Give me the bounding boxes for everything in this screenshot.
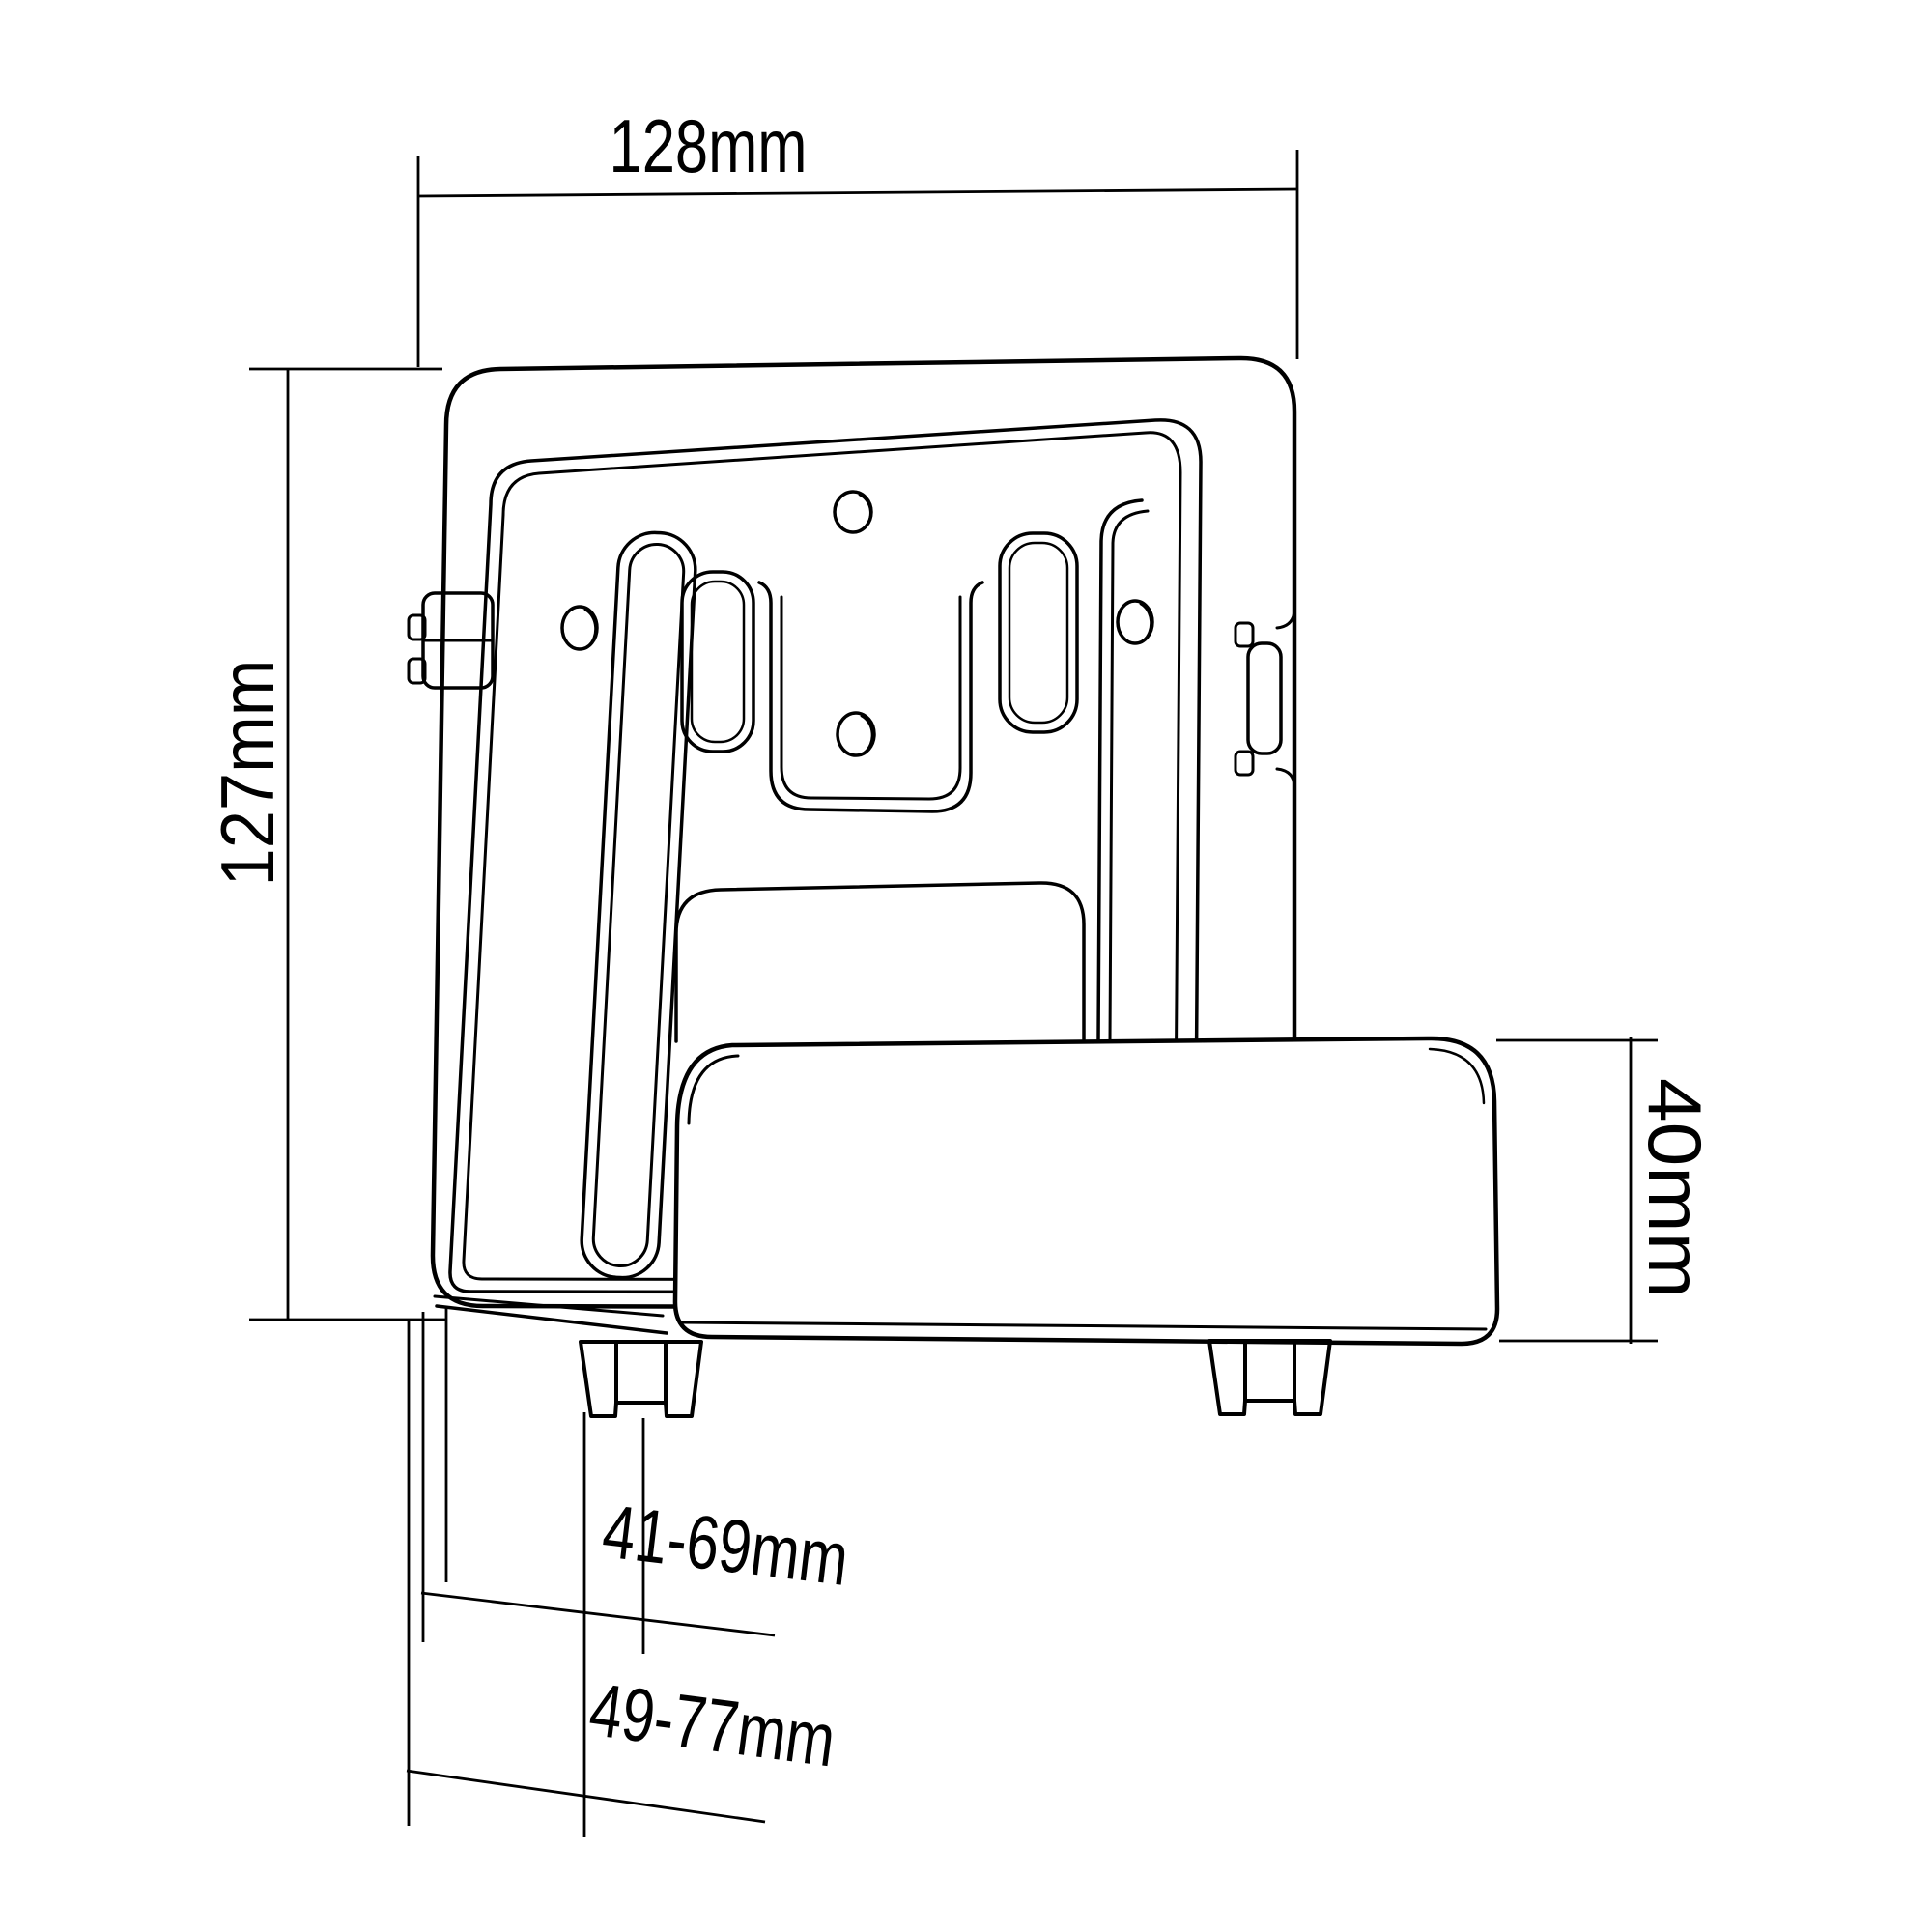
holder-feet	[581, 1341, 1330, 1416]
outer-range-dim-line	[407, 1771, 765, 1822]
width-dimension-label: 128mm	[610, 103, 808, 188]
technical-drawing-page: 128mm 127mm 40mm 41-69mm 49-77mm	[0, 0, 1932, 1932]
wall-mount-diagram: 128mm 127mm 40mm 41-69mm 49-77mm	[0, 0, 1932, 1932]
outer-range-dimension-label: 49-77mm	[584, 1666, 839, 1783]
right-foot	[1209, 1341, 1330, 1414]
height-dimension-label: 127mm	[205, 660, 290, 887]
holder-box-outline	[675, 1038, 1497, 1344]
plate-bottom-edge-line1	[437, 1306, 667, 1333]
depth-dimension-label: 40mm	[1633, 1078, 1718, 1298]
front-holder-box	[675, 1038, 1497, 1344]
inner-range-dim-line	[421, 1593, 775, 1635]
width-dim-line	[418, 189, 1297, 196]
left-foot	[581, 1342, 701, 1416]
inner-range-dimension-label: 41-69mm	[598, 1488, 853, 1602]
